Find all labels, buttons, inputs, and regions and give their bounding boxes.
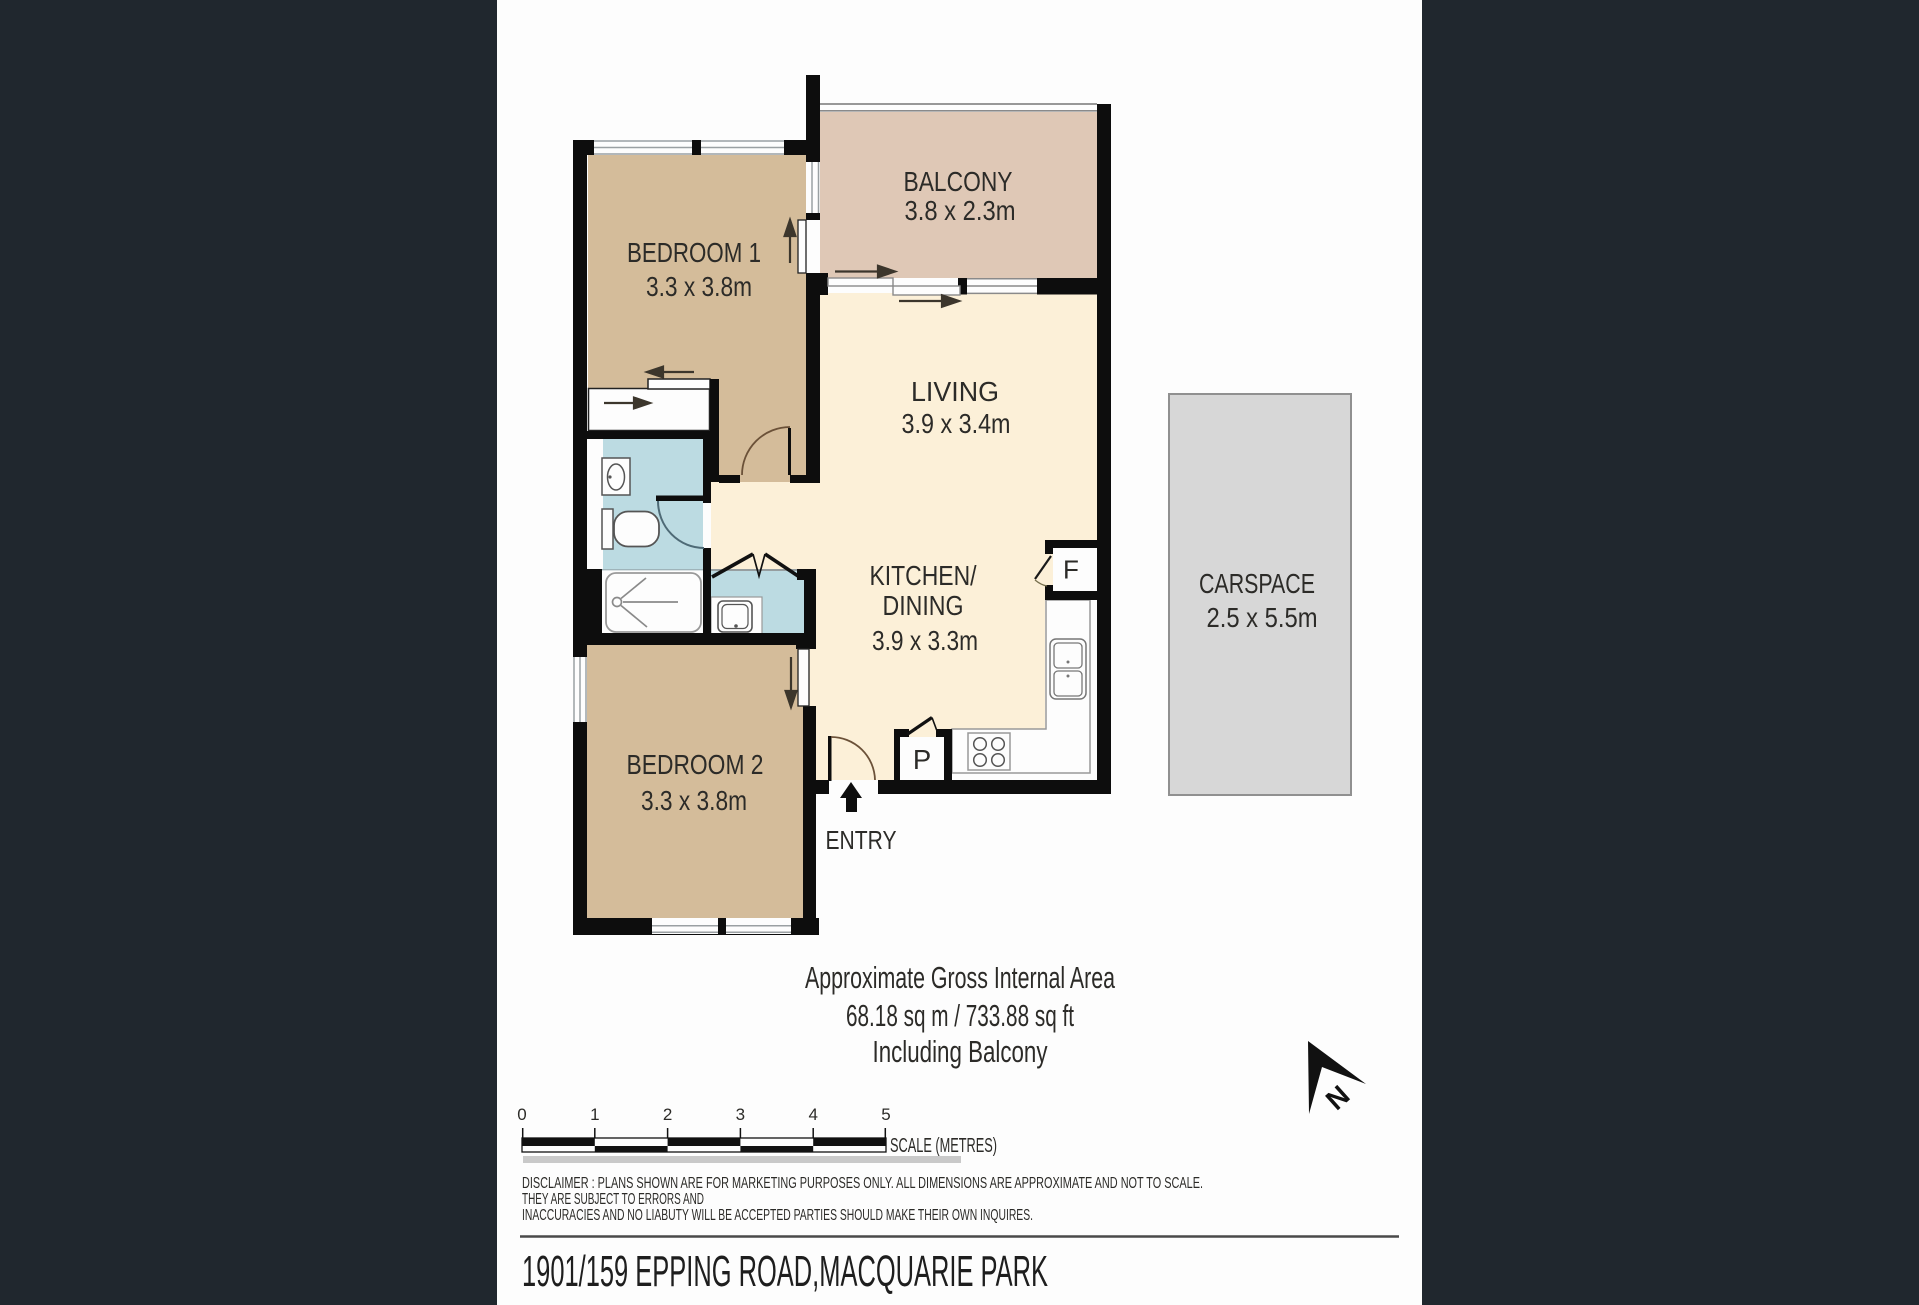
- svg-text:INACCURACIES AND NO LIABUTY WI: INACCURACIES AND NO LIABUTY WILL BE ACCE…: [522, 1207, 1033, 1224]
- svg-text:DISCLAIMER : PLANS SHOWN ARE F: DISCLAIMER : PLANS SHOWN ARE FOR MARKETI…: [522, 1175, 1203, 1192]
- svg-text:3.3 x 3.8m: 3.3 x 3.8m: [646, 271, 752, 302]
- svg-text:2: 2: [663, 1105, 672, 1124]
- svg-text:F: F: [1063, 555, 1079, 585]
- svg-text:3.9 x 3.3m: 3.9 x 3.3m: [872, 625, 978, 656]
- svg-text:3.9 x 3.4m: 3.9 x 3.4m: [902, 408, 1011, 439]
- svg-text:BALCONY: BALCONY: [904, 166, 1013, 197]
- svg-text:DINING: DINING: [883, 590, 964, 621]
- svg-text:ENTRY: ENTRY: [826, 825, 897, 855]
- svg-text:1: 1: [590, 1105, 599, 1124]
- svg-text:0: 0: [517, 1105, 526, 1124]
- svg-text:KITCHEN/: KITCHEN/: [870, 560, 977, 591]
- svg-text:Approximate Gross Internal Are: Approximate Gross Internal Area: [805, 960, 1116, 995]
- svg-text:68.18 sq m / 733.88 sq ft: 68.18 sq m / 733.88 sq ft: [846, 998, 1074, 1033]
- svg-text:BEDROOM 1: BEDROOM 1: [627, 237, 761, 268]
- svg-text:BEDROOM 2: BEDROOM 2: [627, 749, 764, 780]
- svg-text:LIVING: LIVING: [911, 376, 999, 407]
- svg-text:3.8 x 2.3m: 3.8 x 2.3m: [905, 195, 1016, 226]
- svg-text:4: 4: [808, 1105, 817, 1124]
- svg-text:5: 5: [881, 1105, 890, 1124]
- svg-text:Including Balcony: Including Balcony: [873, 1034, 1048, 1069]
- svg-text:CARSPACE: CARSPACE: [1199, 568, 1315, 599]
- svg-text:3.3 x 3.8m: 3.3 x 3.8m: [641, 785, 747, 816]
- svg-text:1901/159 EPPING ROAD,MACQUARIE: 1901/159 EPPING ROAD,MACQUARIE PARK: [522, 1247, 1048, 1296]
- svg-text:2.5 x 5.5m: 2.5 x 5.5m: [1207, 602, 1318, 633]
- svg-text:THEY ARE SUBJECT TO ERRORS AND: THEY ARE SUBJECT TO ERRORS AND: [522, 1191, 704, 1208]
- svg-text:P: P: [913, 744, 931, 775]
- svg-text:3: 3: [736, 1105, 745, 1124]
- svg-text:SCALE (METRES): SCALE (METRES): [890, 1135, 997, 1157]
